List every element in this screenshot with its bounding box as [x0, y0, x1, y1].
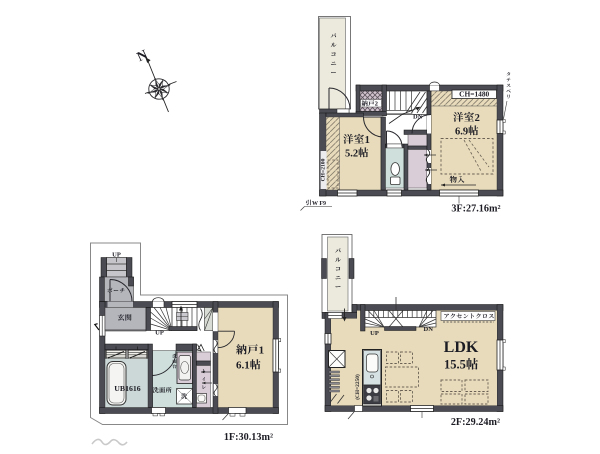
svg-text:6.1: 6.1: [236, 360, 250, 372]
svg-text:UP: UP: [370, 330, 379, 337]
svg-text:5.2: 5.2: [345, 148, 358, 159]
svg-text:UP: UP: [112, 252, 121, 259]
svg-text:UB1616: UB1616: [114, 384, 141, 393]
svg-text:2: 2: [375, 101, 378, 108]
svg-text:2F:29.24m²: 2F:29.24m²: [451, 417, 500, 428]
svg-text:UP: UP: [155, 330, 164, 337]
svg-text:CH=1480: CH=1480: [459, 90, 489, 99]
svg-text:1: 1: [365, 135, 370, 146]
svg-text:1: 1: [259, 345, 265, 357]
svg-text:LDK: LDK: [444, 339, 479, 356]
svg-text:6.9: 6.9: [455, 126, 468, 137]
svg-text:DN: DN: [424, 326, 434, 333]
svg-text:(CH=2250): (CH=2250): [354, 374, 361, 400]
svg-text:W F9: W F9: [312, 201, 326, 207]
svg-text:2: 2: [475, 113, 480, 124]
svg-text:15.5: 15.5: [444, 358, 466, 372]
svg-text:1F:30.13m²: 1F:30.13m²: [224, 432, 273, 443]
svg-text:3F:27.16m²: 3F:27.16m²: [451, 204, 500, 215]
svg-text:CH=2100: CH=2100: [320, 158, 326, 181]
